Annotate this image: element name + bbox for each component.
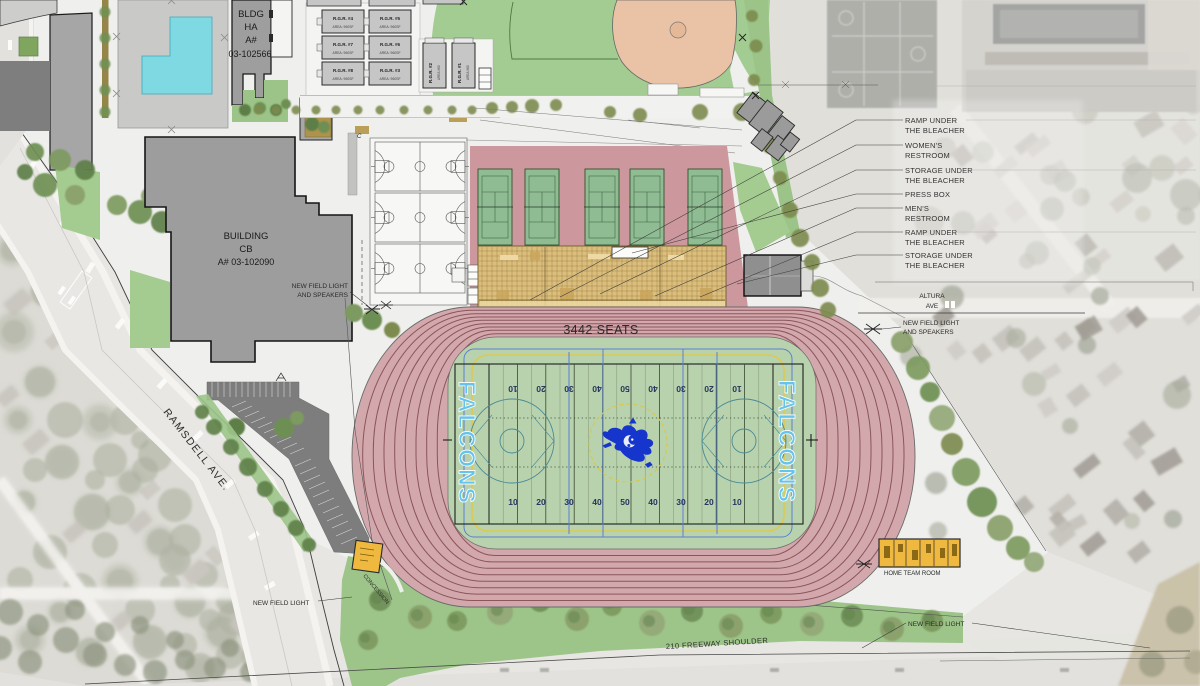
svg-text:AREA: 960SF: AREA: 960SF — [332, 77, 353, 81]
svg-text:10: 10 — [508, 497, 518, 507]
svg-text:40: 40 — [648, 497, 658, 507]
svg-text:30: 30 — [676, 384, 686, 394]
svg-text:HOME TEAM ROOM: HOME TEAM ROOM — [884, 571, 941, 577]
svg-text:10: 10 — [732, 384, 742, 394]
svg-text:FALCONS: FALCONS — [774, 380, 800, 502]
svg-text:RAMP UNDER: RAMP UNDER — [905, 116, 958, 125]
svg-text:20: 20 — [536, 384, 546, 394]
svg-text:AND SPEAKERS: AND SPEAKERS — [297, 292, 348, 299]
svg-text:30: 30 — [564, 497, 574, 507]
svg-text:WOMEN'S: WOMEN'S — [905, 141, 942, 150]
svg-text:NEW FIELD LIGHT: NEW FIELD LIGHT — [253, 600, 309, 607]
svg-text:RESTROOM: RESTROOM — [905, 151, 950, 160]
svg-text:AREA: 960SF: AREA: 960SF — [379, 25, 400, 29]
svg-text:BLDG: BLDG — [238, 9, 264, 20]
svg-text:THE BLEACHER: THE BLEACHER — [905, 261, 965, 270]
svg-text:40: 40 — [592, 384, 602, 394]
svg-text:20: 20 — [704, 384, 714, 394]
svg-text:AREA 960: AREA 960 — [437, 65, 441, 80]
svg-text:FALCONS: FALCONS — [454, 381, 480, 503]
svg-text:STORAGE UNDER: STORAGE UNDER — [905, 166, 973, 175]
svg-text:BUILDING: BUILDING — [224, 231, 269, 242]
svg-text:R.G.R. #6: R.G.R. #6 — [380, 42, 401, 47]
svg-text:R.G.R. #1: R.G.R. #1 — [457, 62, 462, 83]
svg-text:THE BLEACHER: THE BLEACHER — [905, 176, 965, 185]
svg-text:NEW FIELD LIGHT: NEW FIELD LIGHT — [903, 320, 959, 327]
svg-text:STORAGE UNDER: STORAGE UNDER — [905, 251, 973, 260]
svg-text:50: 50 — [620, 384, 630, 394]
svg-text:AREA: 960SF: AREA: 960SF — [332, 51, 353, 55]
svg-text:NEW FIELD LIGHT: NEW FIELD LIGHT — [908, 621, 964, 628]
svg-text:AREA: 960SF: AREA: 960SF — [379, 51, 400, 55]
svg-text:R.G.R. #8: R.G.R. #8 — [333, 68, 354, 73]
svg-text:THE BLEACHER: THE BLEACHER — [905, 238, 965, 247]
svg-text:AREA: 960SF: AREA: 960SF — [332, 25, 353, 29]
svg-text:AREA: 960SF: AREA: 960SF — [379, 77, 400, 81]
svg-text:R.G.R. #5: R.G.R. #5 — [380, 16, 401, 21]
svg-text:RESTROOM: RESTROOM — [905, 214, 950, 223]
svg-text:HA: HA — [244, 22, 258, 33]
svg-text:RAMP UNDER: RAMP UNDER — [905, 228, 958, 237]
svg-text:AREA 960: AREA 960 — [466, 65, 470, 80]
svg-text:PRESS BOX: PRESS BOX — [905, 190, 950, 199]
svg-text:NEW FIELD LIGHT: NEW FIELD LIGHT — [292, 283, 348, 290]
svg-text:THE BLEACHER: THE BLEACHER — [905, 126, 965, 135]
svg-text:R.G.R. #7: R.G.R. #7 — [333, 42, 354, 47]
svg-text:R.G.R. #2: R.G.R. #2 — [428, 62, 433, 83]
svg-text:MEN'S: MEN'S — [905, 204, 929, 213]
svg-text:3442 SEATS: 3442 SEATS — [563, 323, 638, 337]
svg-text:03-102566: 03-102566 — [228, 49, 271, 59]
svg-text:R.G.R. #3: R.G.R. #3 — [380, 68, 401, 73]
svg-text:20: 20 — [704, 497, 714, 507]
svg-text:50: 50 — [620, 497, 630, 507]
svg-text:30: 30 — [564, 384, 574, 394]
svg-text:R.G.R. #4: R.G.R. #4 — [333, 16, 354, 21]
svg-text:C: C — [357, 134, 362, 140]
svg-text:40: 40 — [648, 384, 658, 394]
svg-text:10: 10 — [508, 384, 518, 394]
svg-text:40: 40 — [592, 497, 602, 507]
svg-text:A# 03-102090: A# 03-102090 — [218, 257, 275, 267]
svg-text:30: 30 — [676, 497, 686, 507]
svg-text:A#: A# — [245, 35, 257, 46]
svg-text:ALTURA: ALTURA — [919, 293, 945, 300]
svg-text:AVE: AVE — [926, 303, 939, 310]
svg-text:AND SPEAKERS: AND SPEAKERS — [903, 329, 954, 336]
svg-text:CB: CB — [239, 244, 252, 255]
svg-text:10: 10 — [732, 497, 742, 507]
svg-text:20: 20 — [536, 497, 546, 507]
